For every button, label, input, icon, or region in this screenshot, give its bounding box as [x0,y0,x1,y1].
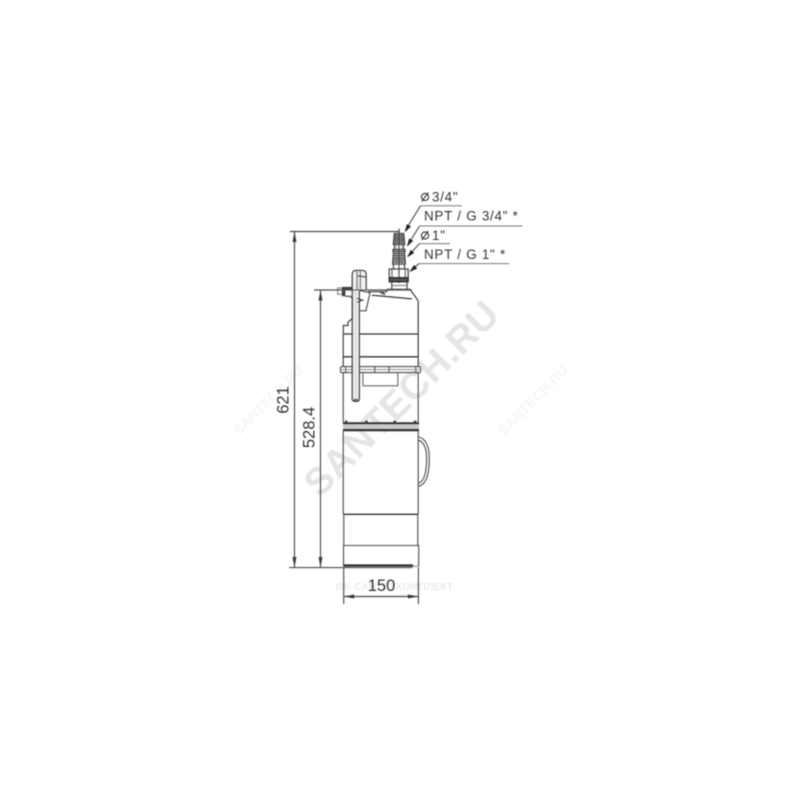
svg-text:150: 150 [368,577,396,595]
svg-text:528.4: 528.4 [300,407,318,448]
svg-text:NPT / G 1" *: NPT / G 1" * [424,247,506,262]
svg-text:621: 621 [274,386,292,414]
svg-text:3/4": 3/4" [432,190,458,205]
svg-text:NPT / G 3/4" *: NPT / G 3/4" * [424,209,519,224]
svg-text:1": 1" [432,228,446,243]
